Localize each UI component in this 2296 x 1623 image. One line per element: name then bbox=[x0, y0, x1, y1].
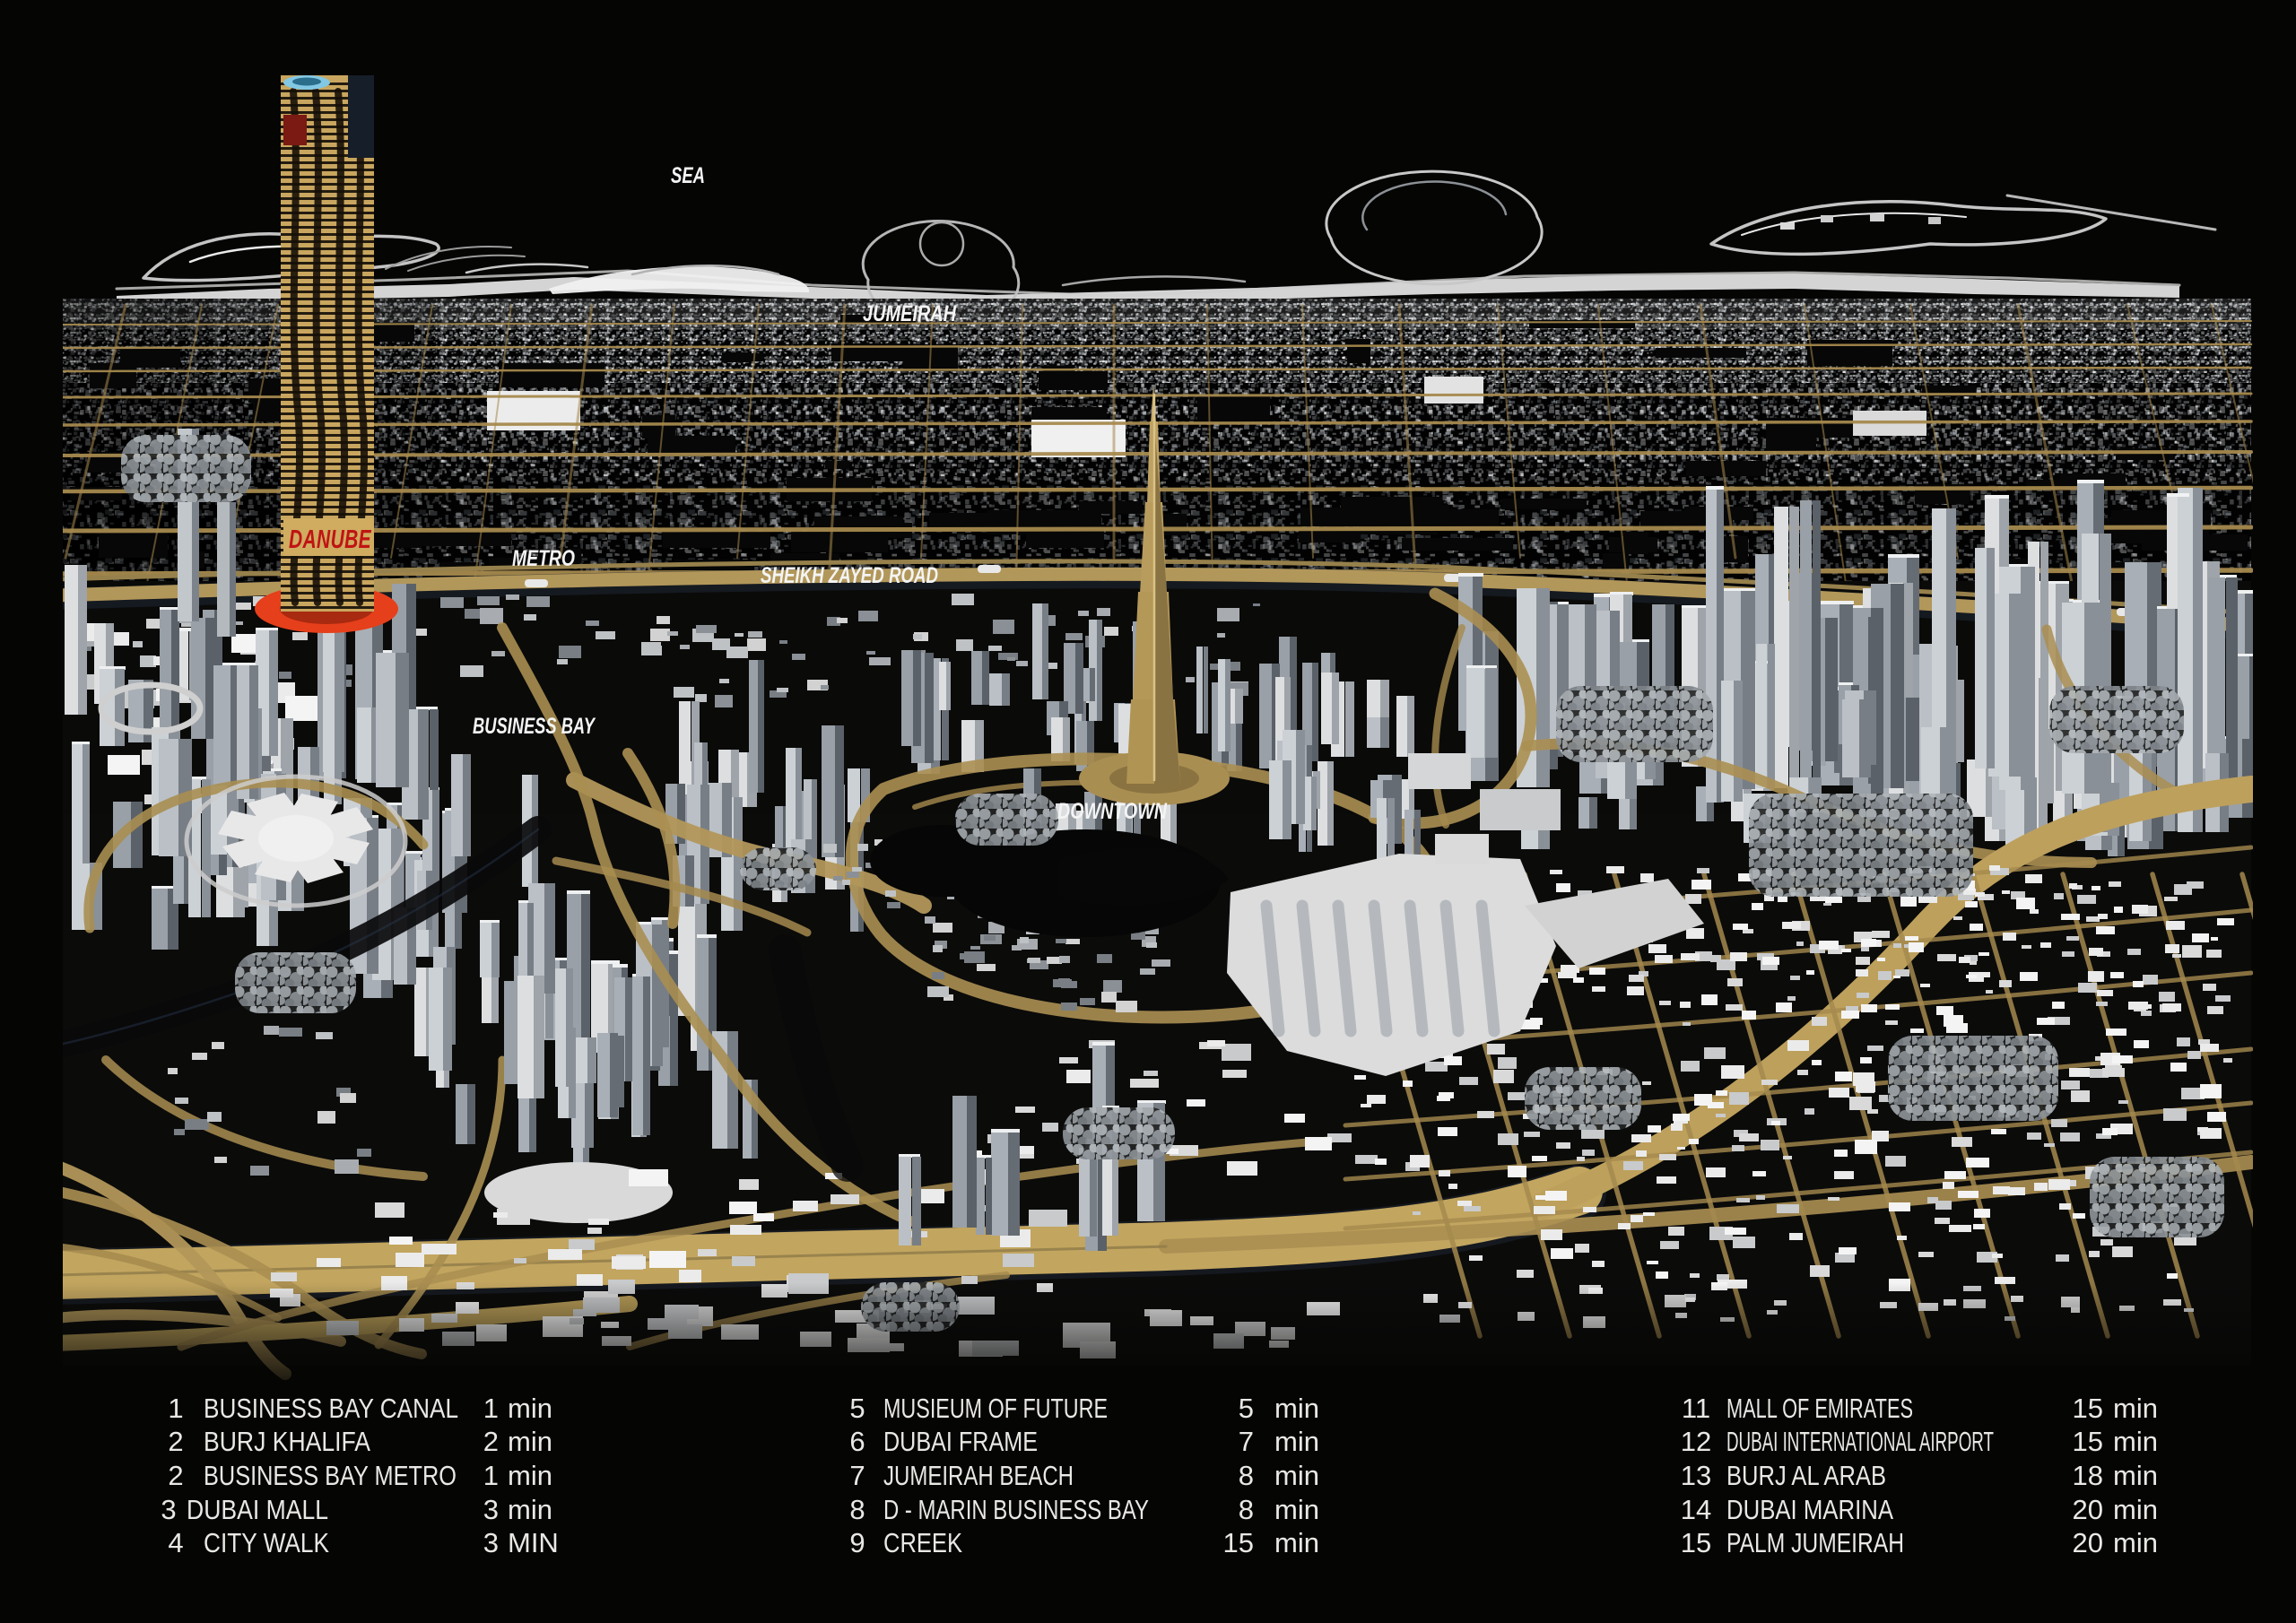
svg-text:5: 5 bbox=[1239, 1393, 1254, 1424]
svg-text:CREEK: CREEK bbox=[883, 1527, 962, 1558]
svg-text:DUBAI MARINA: DUBAI MARINA bbox=[1726, 1494, 1893, 1525]
svg-text:8: 8 bbox=[849, 1494, 865, 1525]
svg-text:min: min bbox=[2113, 1527, 2158, 1558]
svg-text:15: 15 bbox=[1223, 1527, 1254, 1558]
svg-text:CITY WALK: CITY WALK bbox=[204, 1527, 329, 1558]
svg-text:MALL OF EMIRATES: MALL OF EMIRATES bbox=[1726, 1393, 1913, 1424]
svg-text:min: min bbox=[1274, 1494, 1319, 1525]
svg-text:min: min bbox=[2113, 1393, 2158, 1424]
svg-text:SEA: SEA bbox=[671, 163, 705, 188]
svg-text:min: min bbox=[2113, 1426, 2158, 1457]
svg-text:min: min bbox=[508, 1494, 552, 1525]
svg-text:2: 2 bbox=[168, 1426, 183, 1457]
svg-text:2: 2 bbox=[483, 1426, 499, 1457]
svg-text:12: 12 bbox=[1681, 1426, 1711, 1457]
svg-text:8: 8 bbox=[1239, 1460, 1254, 1491]
svg-text:15: 15 bbox=[2073, 1393, 2103, 1424]
svg-text:BUSINESS BAY CANAL: BUSINESS BAY CANAL bbox=[204, 1393, 458, 1424]
svg-text:PALM JUMEIRAH: PALM JUMEIRAH bbox=[1726, 1527, 1904, 1558]
svg-text:SHEIKH ZAYED ROAD: SHEIKH ZAYED ROAD bbox=[761, 563, 938, 588]
svg-text:1: 1 bbox=[168, 1393, 183, 1424]
svg-text:BURJ AL ARAB: BURJ AL ARAB bbox=[1726, 1460, 1886, 1491]
svg-text:METRO: METRO bbox=[512, 546, 575, 571]
svg-text:3: 3 bbox=[483, 1527, 499, 1558]
svg-text:3: 3 bbox=[483, 1494, 499, 1525]
svg-text:4: 4 bbox=[168, 1527, 183, 1558]
svg-text:min: min bbox=[1274, 1527, 1319, 1558]
svg-text:15: 15 bbox=[2073, 1426, 2103, 1457]
svg-text:JUMEIRAH BEACH: JUMEIRAH BEACH bbox=[883, 1460, 1074, 1491]
svg-text:1: 1 bbox=[483, 1460, 499, 1491]
svg-text:8: 8 bbox=[1239, 1494, 1254, 1525]
svg-text:DOWNTOWN: DOWNTOWN bbox=[1057, 799, 1168, 824]
svg-text:D - MARIN BUSINESS BAY: D - MARIN BUSINESS BAY bbox=[883, 1494, 1149, 1525]
svg-text:5: 5 bbox=[849, 1393, 865, 1424]
svg-text:BUSINESS BAY: BUSINESS BAY bbox=[473, 714, 596, 739]
svg-text:DUBAI FRAME: DUBAI FRAME bbox=[883, 1426, 1038, 1457]
svg-text:min: min bbox=[508, 1393, 552, 1424]
svg-text:min: min bbox=[1274, 1460, 1319, 1491]
svg-text:6: 6 bbox=[849, 1426, 865, 1457]
svg-text:3: 3 bbox=[161, 1494, 176, 1525]
svg-text:15: 15 bbox=[1681, 1527, 1711, 1558]
svg-text:14: 14 bbox=[1681, 1494, 1711, 1525]
svg-text:7: 7 bbox=[849, 1460, 865, 1491]
svg-text:min: min bbox=[2113, 1460, 2158, 1491]
svg-text:7: 7 bbox=[1239, 1426, 1254, 1457]
svg-text:min: min bbox=[1274, 1426, 1319, 1457]
svg-text:DUBAI INTERNATIONAL AIRPORT: DUBAI INTERNATIONAL AIRPORT bbox=[1726, 1426, 1994, 1457]
svg-text:13: 13 bbox=[1681, 1460, 1711, 1491]
svg-text:MIN: MIN bbox=[508, 1527, 559, 1558]
svg-text:11: 11 bbox=[1682, 1393, 1710, 1424]
svg-text:BUSINESS BAY METRO: BUSINESS BAY METRO bbox=[204, 1460, 457, 1491]
svg-text:DANUBE: DANUBE bbox=[289, 525, 372, 554]
svg-text:min: min bbox=[508, 1460, 552, 1491]
svg-text:20: 20 bbox=[2073, 1494, 2103, 1525]
svg-text:JUMEIRAH: JUMEIRAH bbox=[863, 301, 957, 326]
svg-text:2: 2 bbox=[168, 1460, 183, 1491]
svg-text:BURJ KHALIFA: BURJ KHALIFA bbox=[204, 1426, 370, 1457]
svg-text:1: 1 bbox=[483, 1393, 499, 1424]
svg-text:min: min bbox=[1274, 1393, 1319, 1424]
svg-text:min: min bbox=[2113, 1494, 2158, 1525]
svg-text:MUSIEUM OF FUTURE: MUSIEUM OF FUTURE bbox=[883, 1393, 1108, 1424]
svg-text:DUBAI MALL: DUBAI MALL bbox=[187, 1494, 328, 1525]
svg-text:min: min bbox=[508, 1426, 552, 1457]
svg-text:18: 18 bbox=[2073, 1460, 2103, 1491]
svg-text:20: 20 bbox=[2073, 1527, 2103, 1558]
svg-text:9: 9 bbox=[849, 1527, 865, 1558]
